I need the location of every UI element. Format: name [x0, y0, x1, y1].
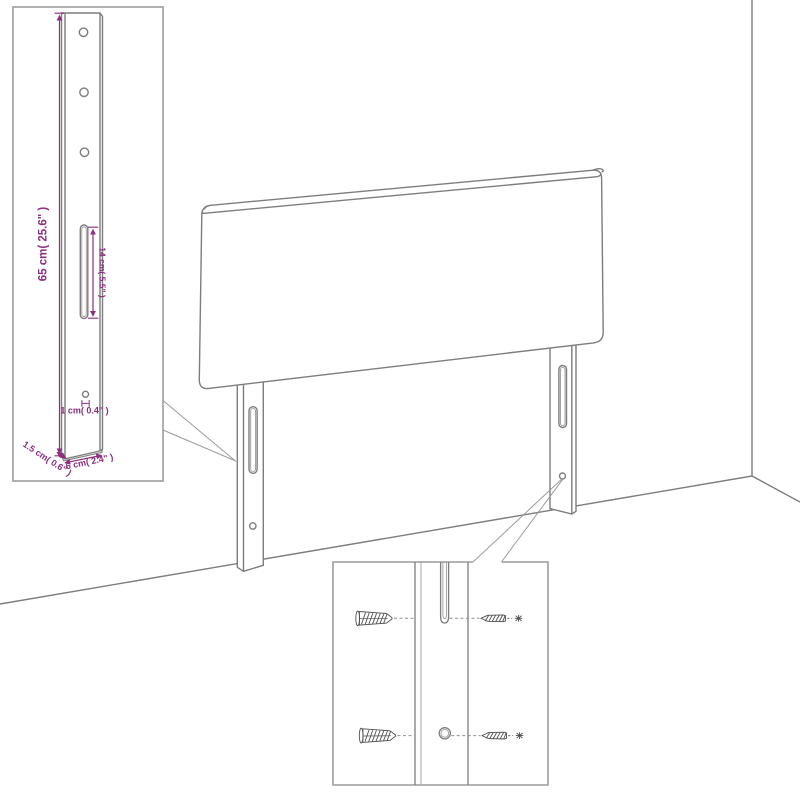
headboard-outline: [199, 170, 603, 388]
leg-detail-drawing: [62, 13, 103, 461]
leg-detail-callout-lines: [163, 401, 236, 462]
left-leg-body: [237, 382, 263, 572]
dimension-height-label: 65 cm( 25.6" ): [38, 207, 50, 282]
dimension-slot-length-label: 14 cm( 5.5" ): [98, 247, 108, 298]
headboard-panel: [199, 169, 603, 389]
right-leg: [550, 343, 576, 515]
headboard-diagram: 65 cm( 25.6" ) 14 cm( 5.5" ) 1 cm( 0.4" …: [0, 0, 800, 800]
dimension-hole-diameter-label: 1 cm( 0.4" ): [60, 406, 108, 416]
diagram-canvas: 65 cm( 25.6" ) 14 cm( 5.5" ) 1 cm( 0.4" …: [0, 0, 800, 800]
mounting-inset: [333, 562, 548, 785]
left-leg: [237, 382, 263, 572]
